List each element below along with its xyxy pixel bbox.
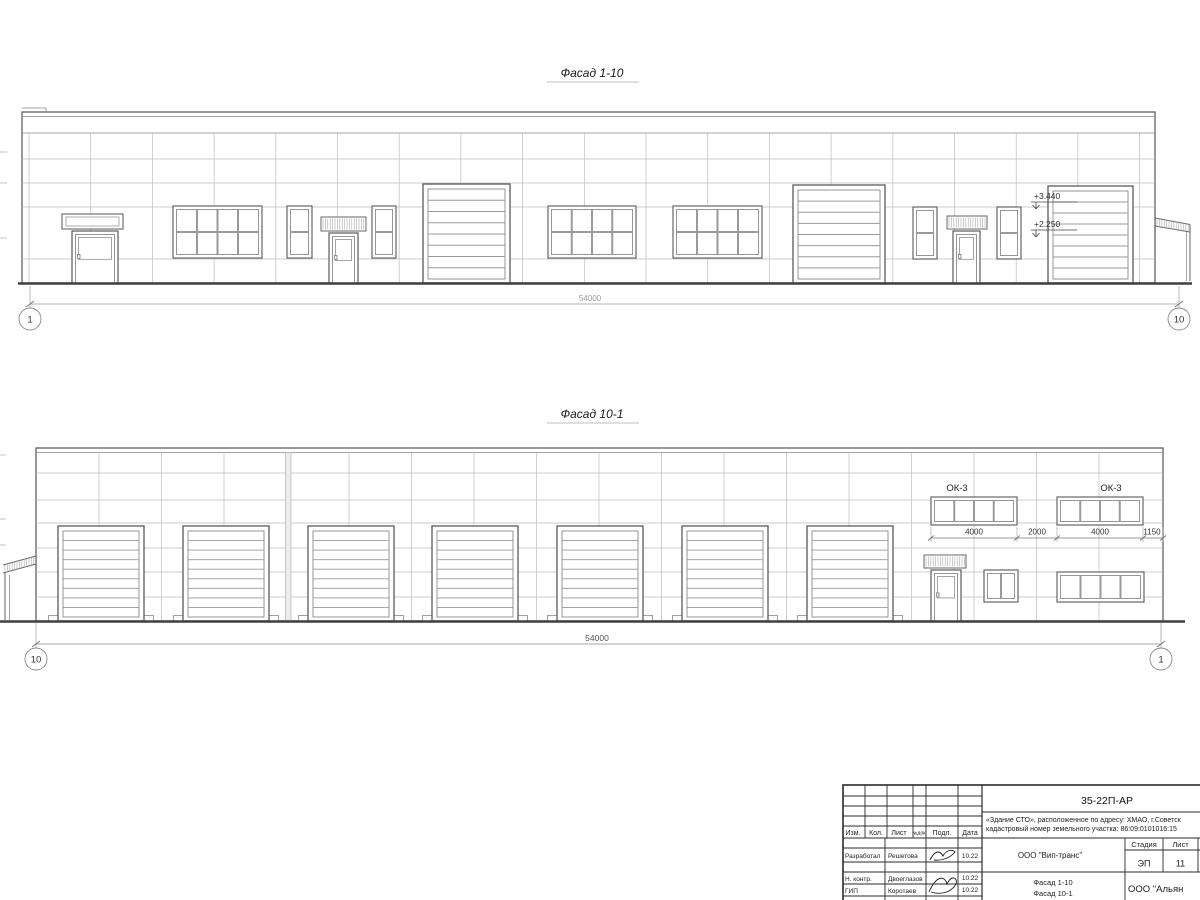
row2-date: 10.22 xyxy=(962,875,979,882)
customer-name: ООО "Вип-транс" xyxy=(1018,851,1083,860)
stage-label: Стадия xyxy=(1131,840,1157,849)
project-description-line1: «Здание СТО», расположенное по адресу: Х… xyxy=(986,817,1182,824)
elevation-drawing-sheet: Фасад 1-10 +3.440 +2.250 54000 1 10 Фаса… xyxy=(0,0,1200,900)
dimension-4000-a: 4000 xyxy=(965,528,983,537)
drawing-name-line2: Фасад 10-1 xyxy=(1033,889,1072,898)
row1-role: Разработал xyxy=(845,852,881,860)
dimension-2000: 2000 xyxy=(1028,528,1046,537)
window-mark-ok3-1: ОК-3 xyxy=(946,483,967,494)
column-header-kol: Кол. xyxy=(869,830,883,837)
elevation-mark-2: +2.250 xyxy=(1034,219,1061,229)
row3-date: 10.22 xyxy=(962,887,979,894)
row3-role: ГИП xyxy=(845,888,858,895)
column-header-list: Лист xyxy=(891,830,907,837)
column-header-ndoc: №док. xyxy=(912,831,927,837)
column-header-date: Дата xyxy=(962,830,978,837)
axis-bubble-top-left-label: 1 xyxy=(27,315,32,326)
axis-bubble-top-right-label: 10 xyxy=(1174,315,1185,326)
facade-top-title: Фасад 1-10 xyxy=(561,66,624,80)
dimension-1150: 1150 xyxy=(1143,528,1161,537)
window-mark-ok3-2: ОК-3 xyxy=(1100,483,1121,494)
elevation-mark-1: +3.440 xyxy=(1034,191,1061,201)
row3-name: Коротаев xyxy=(888,888,917,895)
column-header-izm: Изм. xyxy=(846,830,861,837)
doc-number: 35-22П-АР xyxy=(1081,795,1133,807)
stage-value: ЭП xyxy=(1138,859,1151,869)
org-name: ООО "Альян xyxy=(1128,884,1183,895)
sheet-value: 11 xyxy=(1176,859,1185,869)
facade-bottom-title: Фасад 10-1 xyxy=(561,407,624,421)
axis-bubble-bottom-left-label: 10 xyxy=(31,655,42,666)
row1-name: Решетова xyxy=(888,853,918,860)
drawing-linework xyxy=(0,82,1200,900)
project-description-line2: кадастровый номер земельного участка: 86… xyxy=(986,825,1177,833)
axis-bubble-bottom-right-label: 1 xyxy=(1158,655,1163,666)
drawing-name-line1: Фасад 1-10 xyxy=(1033,878,1072,887)
column-header-sign: Подл. xyxy=(933,830,952,837)
facade-top-total-dimension: 54000 xyxy=(579,294,602,303)
row1-date: 10.22 xyxy=(962,853,979,860)
sheet-label: Лист xyxy=(1172,840,1189,849)
row2-role: Н. контр. xyxy=(845,876,872,883)
dimension-4000-b: 4000 xyxy=(1091,528,1109,537)
facade-bottom-total-dimension: 54000 xyxy=(585,633,609,643)
row2-name: Двоеглазов xyxy=(888,876,923,883)
